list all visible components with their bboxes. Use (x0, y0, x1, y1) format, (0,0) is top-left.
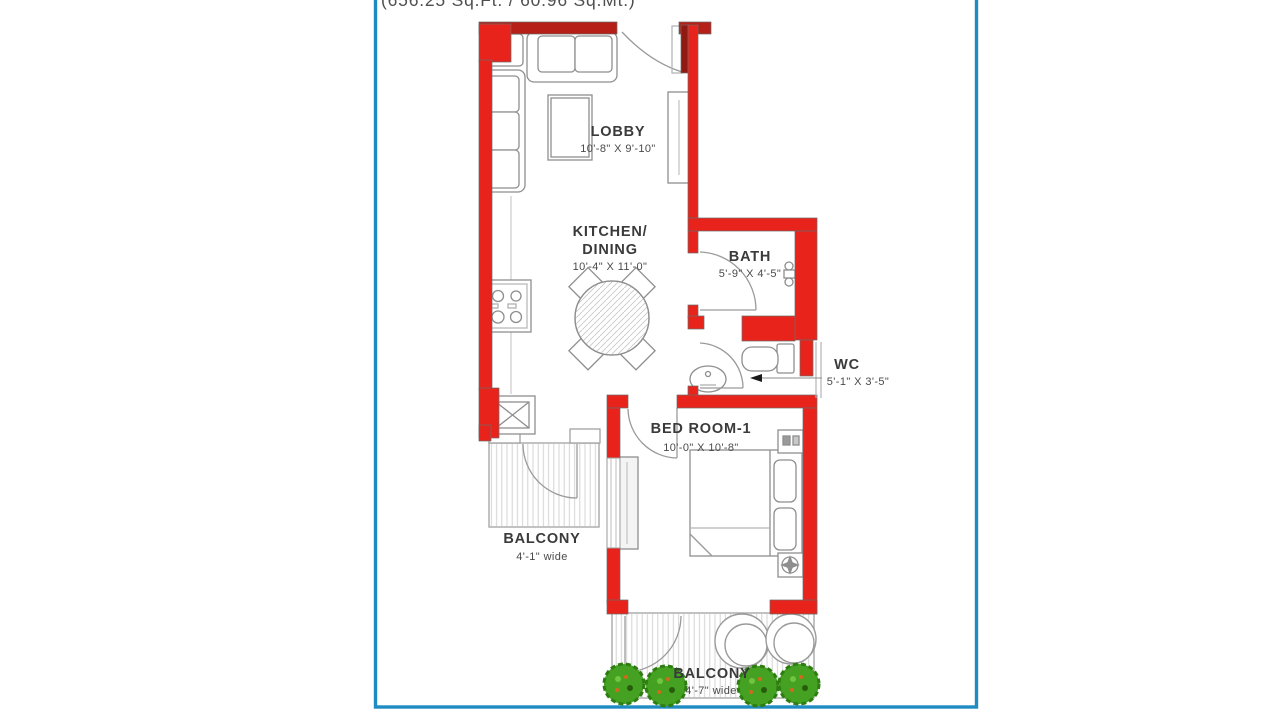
balcony-left-deck (489, 429, 600, 527)
pillow (774, 460, 796, 502)
svg-text:BATH: BATH (729, 249, 771, 265)
shower-mixer-icon (784, 262, 795, 286)
wall-balcony-corner (479, 425, 491, 441)
bed (690, 450, 802, 556)
svg-text:4'-7" wide: 4'-7" wide (685, 685, 737, 697)
wall-bath-top (688, 218, 817, 231)
wall-bedroom-bottom (607, 600, 628, 614)
svg-text:4'-1" wide: 4'-1" wide (516, 551, 568, 563)
svg-text:10'-4" X 11'-0": 10'-4" X 11'-0" (573, 261, 648, 273)
balcony-round-table (766, 614, 816, 664)
plan-caption-clipped: (656.25 Sq.Ft. / 60.96 Sq.Mt.) (381, 0, 636, 10)
svg-text:BED ROOM-1: BED ROOM-1 (651, 421, 752, 437)
svg-text:WC: WC (834, 357, 860, 373)
balcony-left-post (570, 429, 600, 443)
wall-bath-wc-divider (688, 316, 704, 329)
wall-bedroom-left (607, 408, 620, 458)
sofa-top (527, 32, 617, 82)
wall-bedroom-right (803, 408, 817, 614)
wall-bedroom-top (607, 395, 628, 408)
floor-plan-drawing: (656.25 Sq.Ft. / 60.96 Sq.Mt.) (0, 0, 1280, 720)
svg-text:BALCONY: BALCONY (673, 666, 750, 682)
svg-text:10'-0" X 10'-8": 10'-0" X 10'-8" (663, 442, 739, 454)
svg-text:KITCHEN/: KITCHEN/ (573, 224, 648, 240)
wall-bedroom-top (677, 395, 817, 408)
balcony-round-table (715, 614, 769, 668)
svg-text:5'-1" X 3'-5": 5'-1" X 3'-5" (827, 376, 889, 388)
svg-text:DINING: DINING (582, 242, 638, 258)
wall-bath-left-stub (688, 231, 698, 253)
pillow (774, 508, 796, 550)
wall-bath-right (795, 231, 817, 340)
svg-text:5'-9" X 4'-5": 5'-9" X 4'-5" (719, 268, 781, 280)
toilet (742, 344, 794, 373)
wall-bath-wc-divider (742, 316, 795, 341)
plant-icon (779, 664, 819, 704)
fan-unit-icon (778, 553, 803, 577)
wall-bedroom-bottom (770, 600, 817, 614)
label-kitchen-dining: KITCHEN/ DINING 10'-4" X 11'-0" (573, 224, 648, 273)
bedside-cabinet (778, 430, 803, 453)
plant-icon (604, 664, 644, 704)
floor-plan-page: (656.25 Sq.Ft. / 60.96 Sq.Mt.) (0, 0, 1280, 720)
dining-table (575, 281, 649, 355)
wall-lobby-right (688, 25, 698, 218)
wall-bedroom-left (607, 548, 620, 603)
entrance-door-leaf (681, 25, 688, 73)
lobby-cabinet (668, 92, 690, 183)
label-lobby: LOBBY 10'-8" X 9'-10" (580, 124, 656, 155)
bedroom-window (607, 458, 620, 548)
wall-left (479, 60, 492, 390)
svg-text:10'-8" X 9'-10": 10'-8" X 9'-10" (580, 143, 656, 155)
wall-wc-right (800, 340, 813, 376)
wall-corner-tl (479, 24, 511, 62)
svg-text:LOBBY: LOBBY (591, 124, 646, 140)
svg-text:BALCONY: BALCONY (503, 531, 580, 547)
